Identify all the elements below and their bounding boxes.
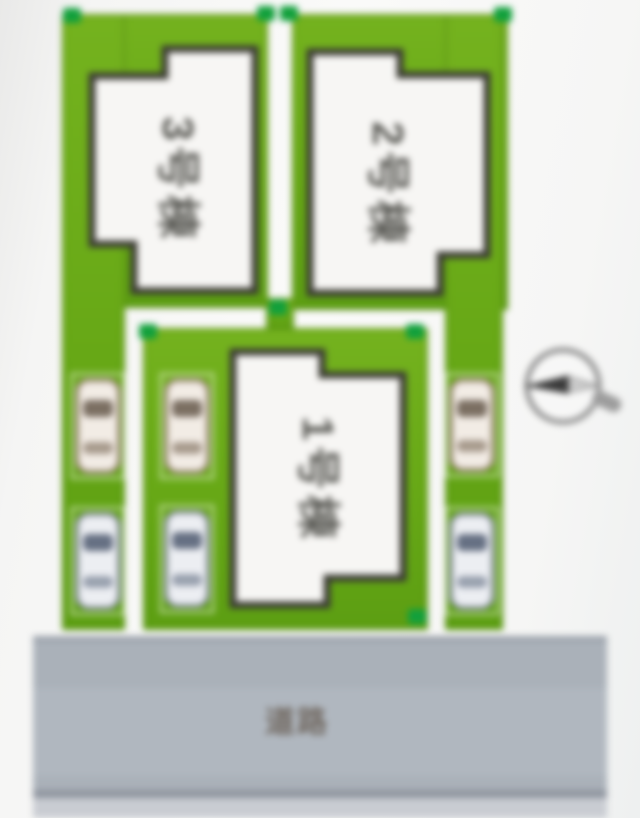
site-plan-drawing: 3号棟 2号棟 1号棟 道路 [0, 0, 640, 818]
car-icon [77, 514, 119, 608]
car-icon [451, 380, 493, 470]
lot-3-label: 3号棟 [150, 116, 214, 243]
car-icon [166, 380, 208, 472]
lot-1-label: 1号棟 [290, 416, 354, 543]
lot-2-label: 2号棟 [360, 121, 424, 248]
site-plan-image[interactable]: 3号棟 2号棟 1号棟 道路 [0, 0, 640, 818]
car-icon [77, 380, 119, 472]
car-icon [166, 512, 208, 606]
compass-icon [524, 350, 624, 422]
plan-vector-layer [0, 0, 640, 818]
car-icon [451, 514, 493, 608]
road-label: 道路 [265, 697, 329, 741]
